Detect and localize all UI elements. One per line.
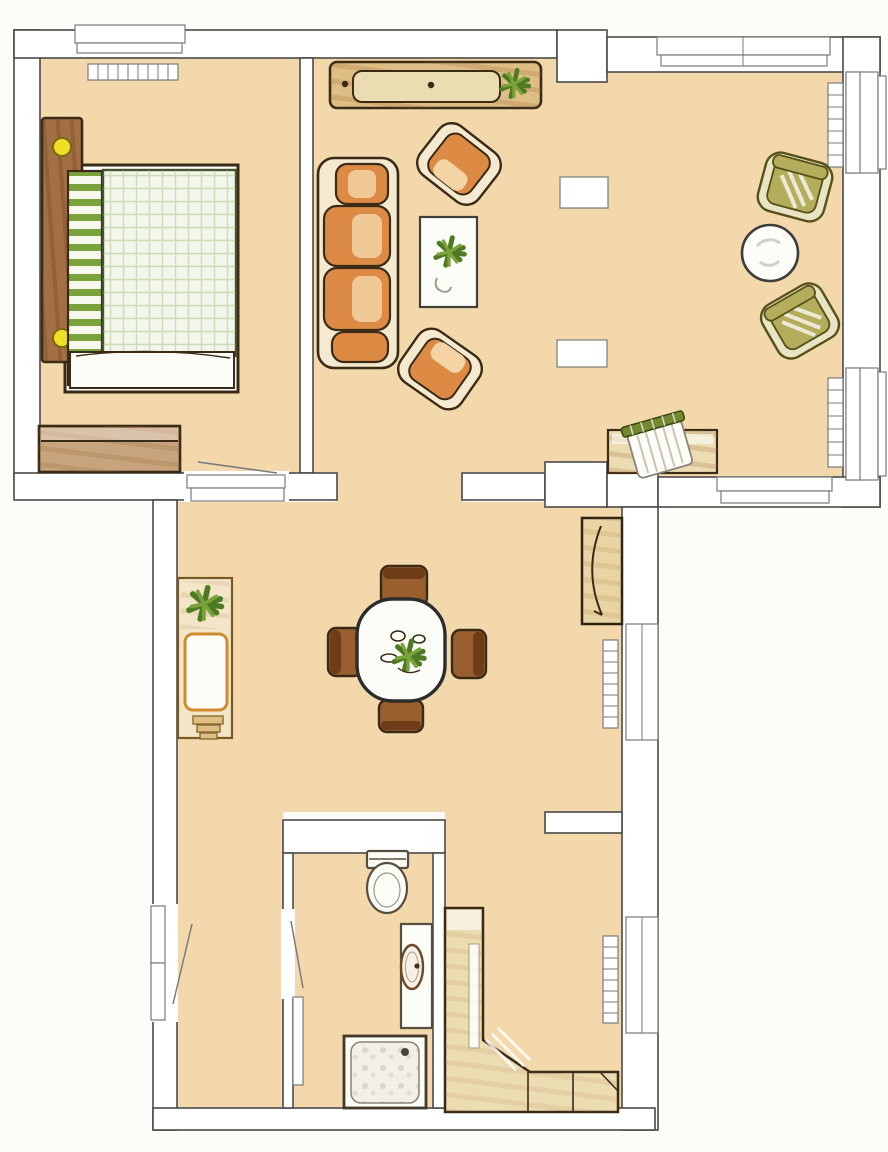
shower-drain [401, 1048, 409, 1056]
wall-bedroom-bottom [14, 473, 187, 500]
display-cabinet [582, 518, 622, 624]
round-side-table [742, 225, 798, 281]
wall-hall-left [153, 500, 177, 1130]
window-hall-upper [626, 624, 658, 740]
toilet [367, 851, 408, 913]
wall-top-pier [557, 30, 607, 82]
dining-chair-bottom [379, 700, 423, 732]
radiator-living-lower [828, 378, 843, 467]
washbasin-counter [401, 924, 432, 1028]
radiator-hall-lower [603, 936, 618, 1023]
cabinet-base [200, 733, 217, 739]
wall-bedroom-living [300, 58, 313, 473]
bathroom-door-leaf [293, 997, 303, 1085]
sideboard-knob [342, 81, 348, 87]
bed-knob-top [53, 138, 71, 156]
wall-pier-passage [287, 473, 337, 500]
wall-bedroom-left [14, 30, 40, 478]
window-living-right-upper [846, 72, 886, 173]
radiator-hall-upper [603, 640, 618, 728]
coffee-table [420, 217, 477, 307]
wall-corner-block [545, 462, 607, 507]
shower-tray [344, 1036, 426, 1108]
dining-chair-right [452, 630, 486, 678]
floor-plan-drawing [0, 0, 888, 1152]
window-hall-lower [626, 917, 658, 1033]
corridor-floor [177, 812, 283, 1108]
sideboard-knob [428, 82, 434, 88]
cabinet-base [197, 725, 220, 732]
sideboard [330, 62, 541, 108]
column-upper [560, 177, 608, 208]
bed-foot-sheet [70, 352, 234, 388]
column-lower [557, 340, 607, 367]
cabinet-base [193, 716, 223, 724]
wall-hall-right [622, 507, 658, 1130]
window-living-right-lower [846, 368, 886, 480]
radiator-living-upper [828, 83, 843, 167]
radiator-bedroom [88, 64, 178, 80]
wall-bathroom-right [433, 853, 445, 1108]
wall-living-bottom-gap [607, 473, 658, 507]
bed-duvet-pattern [103, 170, 236, 356]
window-living-bottom [717, 477, 832, 503]
window-bedroom-top [75, 25, 185, 53]
window-living-top [657, 37, 830, 66]
faucet [414, 963, 419, 968]
floor-plan-scan [0, 0, 888, 1152]
wall-stub [545, 812, 622, 833]
sofa [318, 158, 398, 368]
dresser [39, 426, 180, 472]
wall-bathroom-top [283, 820, 445, 853]
wall-living-bottom-mid [462, 473, 545, 500]
closet-handle-slat [469, 944, 479, 1048]
plant-cabinet [178, 578, 232, 739]
